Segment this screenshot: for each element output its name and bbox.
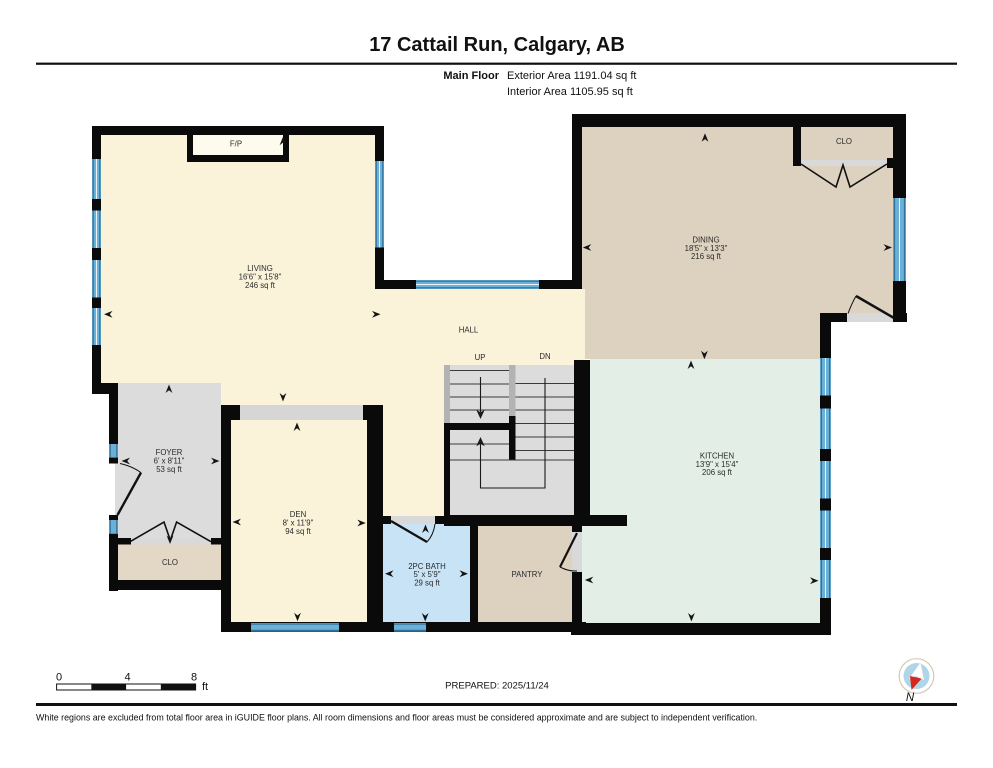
svg-text:53 sq ft: 53 sq ft [156, 465, 182, 474]
svg-text:216 sq ft: 216 sq ft [691, 252, 722, 261]
svg-text:4: 4 [124, 671, 130, 683]
svg-text:Exterior Area 1191.04 sq ft: Exterior Area 1191.04 sq ft [507, 70, 636, 82]
svg-text:206 sq ft: 206 sq ft [702, 468, 733, 477]
svg-text:CLO: CLO [836, 137, 852, 146]
svg-text:8: 8 [191, 671, 197, 683]
svg-text:HALL: HALL [459, 326, 479, 335]
svg-text:N: N [906, 692, 915, 704]
svg-text:29 sq ft: 29 sq ft [414, 578, 440, 587]
svg-text:F/P: F/P [230, 140, 242, 149]
svg-text:94 sq ft: 94 sq ft [285, 527, 311, 536]
svg-text:PREPARED: 2025/11/24: PREPARED: 2025/11/24 [445, 680, 549, 691]
svg-text:CLO: CLO [162, 558, 178, 567]
svg-text:UP: UP [475, 353, 486, 362]
svg-text:ft: ft [202, 681, 208, 693]
svg-text:246 sq ft: 246 sq ft [245, 281, 276, 290]
svg-text:Main Floor: Main Floor [443, 70, 499, 82]
svg-text:White regions are excluded fro: White regions are excluded from total fl… [36, 712, 757, 722]
svg-text:17 Cattail Run, Calgary, AB: 17 Cattail Run, Calgary, AB [369, 34, 625, 56]
svg-text:Interior Area 1105.95 sq ft: Interior Area 1105.95 sq ft [507, 86, 633, 98]
svg-text:PANTRY: PANTRY [512, 570, 544, 579]
svg-text:0: 0 [56, 671, 62, 683]
svg-text:DN: DN [539, 352, 550, 361]
